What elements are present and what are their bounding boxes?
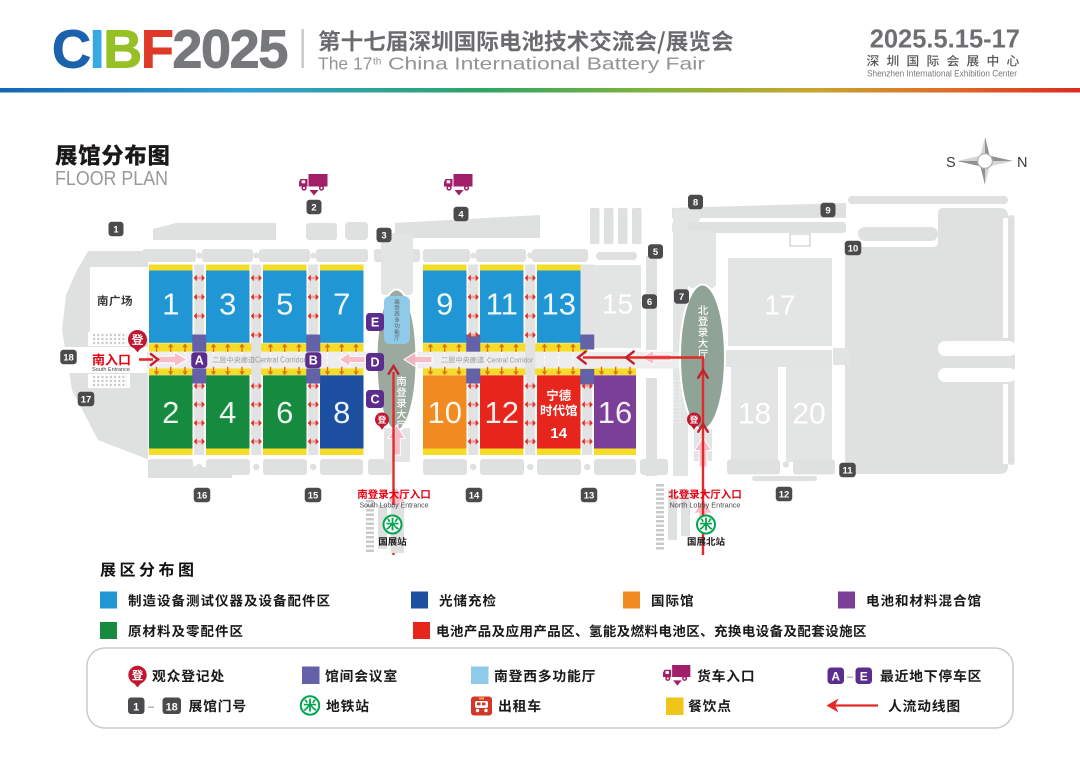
svg-text:South Entrance: South Entrance: [92, 367, 130, 373]
svg-text:9: 9: [436, 287, 453, 322]
svg-text:4: 4: [458, 209, 464, 220]
svg-text:Shenzhen International Exhibit: Shenzhen International Exhibition Center: [867, 69, 1017, 80]
svg-text:A: A: [195, 354, 204, 368]
svg-text:2: 2: [311, 202, 316, 213]
svg-text:6: 6: [647, 297, 652, 308]
svg-text:A: A: [831, 669, 840, 683]
svg-text:15: 15: [602, 289, 633, 320]
svg-text:13: 13: [542, 287, 576, 322]
svg-text:12: 12: [779, 489, 790, 500]
svg-text:5: 5: [276, 287, 293, 322]
svg-text:CIBF2025: CIBF2025: [52, 20, 287, 80]
svg-text:S: S: [946, 155, 956, 171]
svg-text:10: 10: [428, 395, 462, 430]
svg-text:13: 13: [584, 490, 595, 501]
svg-text:4: 4: [219, 395, 236, 430]
svg-text:8: 8: [333, 395, 350, 430]
svg-text:D: D: [370, 355, 379, 369]
svg-text:14: 14: [469, 490, 480, 501]
svg-text:5: 5: [653, 247, 659, 258]
svg-text:6: 6: [276, 395, 293, 430]
svg-text:17: 17: [764, 290, 795, 321]
svg-text:B: B: [309, 354, 318, 368]
svg-text:North Lobby Entrance: North Lobby Entrance: [670, 503, 741, 510]
svg-text:–: –: [847, 671, 854, 683]
svg-text:FLOOR PLAN: FLOOR PLAN: [55, 167, 168, 190]
svg-text:9: 9: [825, 205, 830, 216]
svg-text:E: E: [860, 669, 868, 683]
svg-text:18: 18: [166, 701, 178, 713]
svg-text:–: –: [148, 701, 155, 713]
svg-text:17: 17: [81, 394, 92, 405]
svg-text:The 17: The 17: [318, 54, 372, 74]
svg-text:16: 16: [197, 490, 208, 501]
svg-text:7: 7: [679, 292, 684, 303]
svg-text:South Lobby Entrance: South Lobby Entrance: [360, 503, 429, 510]
svg-text:11: 11: [486, 287, 518, 322]
svg-text:C: C: [370, 392, 379, 406]
svg-text:2: 2: [162, 395, 179, 430]
svg-text:China International Battery Fa: China International Battery Fair: [388, 54, 705, 74]
svg-text:11: 11: [842, 465, 853, 476]
svg-text:12: 12: [485, 395, 519, 430]
svg-text:10: 10: [848, 243, 859, 254]
svg-text:Central Corridor: Central Corridor: [255, 356, 306, 365]
svg-text:18: 18: [63, 352, 74, 363]
svg-text:18: 18: [738, 398, 771, 431]
svg-text:N: N: [1017, 155, 1027, 171]
svg-text:20: 20: [792, 398, 825, 431]
svg-text:Central Corridor: Central Corridor: [487, 356, 533, 365]
svg-text:16: 16: [598, 395, 632, 430]
svg-text:8: 8: [693, 197, 698, 208]
svg-text:3: 3: [381, 230, 386, 241]
svg-text:14: 14: [550, 425, 567, 442]
svg-text:1: 1: [113, 224, 119, 235]
svg-text:E: E: [371, 315, 379, 329]
svg-text:7: 7: [333, 287, 350, 322]
svg-text:th: th: [373, 57, 381, 68]
svg-text:1: 1: [162, 287, 179, 322]
svg-text:2025.5.15-17: 2025.5.15-17: [870, 26, 1020, 54]
svg-text:3: 3: [219, 287, 236, 322]
svg-text:1: 1: [133, 701, 139, 713]
svg-text:15: 15: [308, 490, 319, 501]
